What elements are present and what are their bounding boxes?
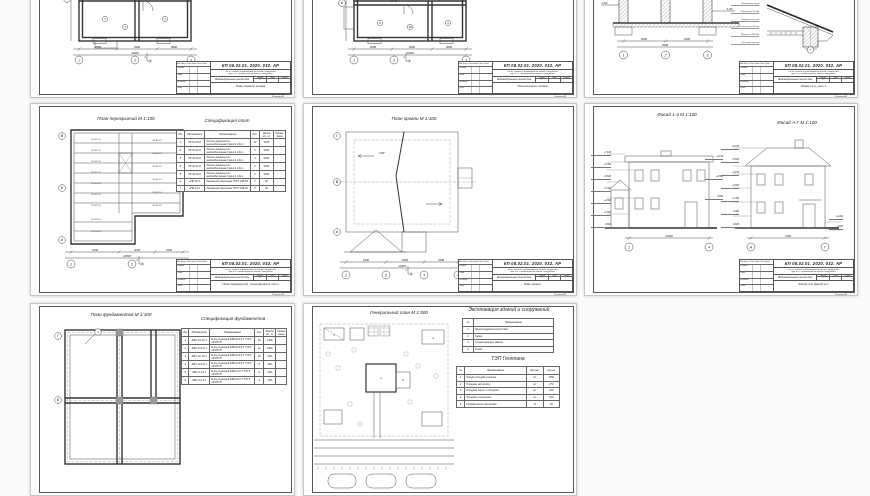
spec-cell: 470 [263, 369, 276, 377]
spec-cell: ФБС 24.4.6-Т [189, 337, 210, 345]
svg-text:2400: 2400 [362, 258, 370, 262]
svg-text:3220: 3220 [134, 248, 141, 252]
grid-axis-bubbles: 1 2 3 [620, 51, 712, 59]
section-cut-mark [139, 256, 144, 265]
spec-cell: ФБС 9.4.6-Т [189, 369, 210, 377]
slab-labels-right: ПК 42-15ПК 42-15ПК 42-15ПК 42-12ПК 42-15… [135, 134, 179, 212]
title-block: Изм. Кол.уч. Лист №док. Подп. Дата Разра… [458, 259, 573, 292]
drawing-title: Генеральный план М 1:500 [344, 310, 454, 315]
discipline-lines: ПМ.01 Участие в проектировании зданий и … [774, 70, 853, 77]
svg-text:1: 1 [353, 58, 355, 62]
sheet-floor1-plan[interactable]: 1 2 3 4 5 4500 2900 3600 11000 1 2 3 В Б… [30, 0, 295, 98]
spec-cell: Блок стеновой ФБС24.4.6-Т ГОСТ 13579-78 [210, 337, 255, 345]
table-row: 2Гараж [463, 333, 554, 340]
spec-cell: 3 [463, 340, 474, 347]
list-item: ПК 42-15 [135, 205, 179, 207]
sheet-slabs-plan[interactable]: План перекрытий М 1:100 Спецификация пли… [30, 103, 295, 296]
spec-cell: м² [527, 381, 543, 388]
spec-cell: 5 [177, 171, 185, 179]
spec-table: №Наименование1Проектируемый жилой дом2Га… [462, 318, 554, 353]
sheet-content-name: План перекрытий, спецификация плит [211, 281, 290, 291]
list-item: +6,870 [721, 146, 739, 150]
title-block: Изм. Кол.уч. Лист №док. Подп. Дата Разра… [458, 61, 573, 94]
spec-cell: ПК 51-12-8 [184, 147, 205, 155]
svg-text:4500: 4500 [641, 37, 648, 41]
spec-cell: 4 [182, 361, 189, 369]
sheets-count [841, 79, 853, 82]
svg-text:1: 1 [403, 55, 405, 59]
spec-cell: 5 [251, 185, 260, 192]
signature-row: Разраб. [740, 265, 773, 272]
foundations-spec-table: Поз.ОбозначениеНаименованиеКол.Масса ед.… [181, 328, 287, 385]
table-row: 3Площадь дорог и площадокм²420 [457, 388, 560, 395]
spec-cell: ПК 51-15-8 [184, 139, 205, 147]
table-row: 6ФБС 9.6.6-ТБлок стеновой ФБС9.6.6-Т ГОС… [182, 377, 287, 385]
sheet-facades[interactable]: Фасад 1-4 М 1:100 Фасад А-Г М 1:100 1090… [584, 103, 858, 296]
title-block-main: КП 08.02.01. 2020. 032. АР ПМ.01 Участие… [493, 62, 572, 93]
spec-cell: 1960 [263, 345, 276, 353]
node-callout-labels: МеталлочерепицаОбрешётка 32х100Стропильн… [731, 3, 759, 45]
spec-cell: 1800 [259, 147, 273, 155]
title-block-signatures: Изм. Кол.уч. Лист №док. Подп. Дата Разра… [459, 260, 493, 291]
spec-cell [273, 171, 285, 179]
svg-text:4500: 4500 [95, 45, 102, 49]
spec-cell: 270 [543, 381, 559, 388]
stage-value: У [817, 277, 829, 280]
spec-cell: 2 [251, 163, 260, 171]
discipline-lines: ПМ.01 Участие в проектировании зданий и … [211, 70, 290, 77]
spec-header-cell: Приме- чание [273, 131, 285, 139]
spec-cell: 4 [251, 155, 260, 163]
title-block-signatures: Изм. Кол.уч. Лист №док. Подп. Дата Разра… [177, 260, 211, 291]
sheets-count [278, 79, 290, 82]
spec-cell: 46 [255, 337, 263, 345]
spec-cell: 18 [543, 401, 559, 408]
sheet-section-node[interactable]: +5,640 +3,300 -1,940 +6,640 +4,140 +2,74… [584, 0, 858, 98]
spec-cell: 4 [463, 346, 474, 353]
spec-cell: 2 [177, 147, 185, 155]
document-code: КП 08.02.01. 2020. 032. АР [493, 260, 572, 268]
svg-text:А: А [749, 245, 753, 249]
list-item: +3,300 [591, 188, 611, 192]
discipline-line: МДК 01.01 Проектирование зданий и сооруж… [211, 73, 290, 75]
object-name: Индивидуальный жилой дом [774, 77, 816, 82]
facade-2-right-elevation-marks: +0,464-0,600 [829, 216, 843, 230]
spec-cell [273, 139, 285, 147]
spec-cell: Перемычка брусковая ГОСТ 948-84 [205, 179, 251, 186]
spec-header-cell: Наименование [465, 367, 527, 375]
svg-text:10900: 10900 [665, 234, 673, 238]
discipline-line: МДК 01.01 Проектирование зданий и сооруж… [493, 271, 572, 273]
slab-labels-mid: ПК 51-12ПК 15-12 [75, 214, 117, 238]
spec-header-cell: Приме- чание [276, 329, 287, 337]
svg-text:10800: 10800 [123, 254, 131, 258]
svg-text:2: 2 [664, 53, 667, 57]
list-item: +7,100 [591, 152, 611, 156]
spec-cell [273, 163, 285, 171]
list-item: ПК 51-15 [75, 194, 117, 196]
genplan-drawing: 1 2 3 4 [314, 320, 454, 492]
title-block: Изм. Кол.уч. Лист №док. Подп. Дата Разра… [739, 61, 854, 94]
list-item: Обрешётка 32х100 [731, 11, 759, 14]
spec-cell: Общая площадь участка [465, 375, 527, 382]
eave-node-drawing: Г [761, 1, 841, 53]
spec-cell [273, 155, 285, 163]
spec-header-cell: Масса ед., кг [259, 131, 273, 139]
list-item: ПК 15-12 [75, 231, 117, 233]
signature-row: Разраб. [177, 265, 210, 272]
table-row: 4ФБС 12.6.6-ТБлок стеновой ФБС12.6.6-Т Г… [182, 361, 287, 369]
list-item: +5,600 [591, 176, 611, 180]
table-row: 1Проектируемый жилой дом [463, 327, 554, 334]
spec-cell: % [527, 401, 543, 408]
spec-cell: 4 [177, 163, 185, 171]
stage-boxes: Стадия Лист Листов У [535, 77, 572, 82]
sheet-content-name: План первого этажа [211, 83, 290, 93]
sheet-content-name: План второго этажа [493, 83, 572, 93]
spec-cell [276, 369, 287, 377]
spec-cell: Блок стеновой ФБС9.4.6-Т ГОСТ 13579-78 [210, 369, 255, 377]
list-item: -0,600 [721, 224, 739, 228]
format-label: Формат А3 [554, 294, 566, 296]
svg-text:2: 2 [130, 262, 133, 266]
spec-cell [276, 353, 287, 361]
list-item: ПК 51-15 [75, 161, 117, 163]
spec-header-cell: № [457, 367, 465, 375]
signature-row: Разраб. [459, 67, 492, 74]
list-item: +6,390 [591, 164, 611, 168]
list-item: +5,600 [721, 159, 739, 163]
title-block-main: КП 08.02.01. 2020. 032. АР ПМ.01 Участие… [774, 260, 853, 291]
svg-text:А: А [60, 238, 64, 242]
slabs-spec-table: Поз.ОбозначениеНаименованиеКол.Масса ед.… [176, 130, 286, 192]
spec-cell [276, 337, 287, 345]
tep-table: №НаименованиеЕд.изм.Кол-во1Общая площадь… [456, 366, 560, 408]
spec-table: Поз.ОбозначениеНаименованиеКол.Масса ед.… [176, 130, 286, 192]
discipline-line: МДК 01.01 Проектирование зданий и сооруж… [774, 271, 853, 273]
spec-cell: 54 [259, 185, 273, 192]
svg-text:11000: 11000 [131, 51, 139, 55]
spec-cell: 1500 [259, 171, 273, 179]
sheet-number [266, 79, 278, 82]
table-row: 5Коэффициент застройки%18 [457, 401, 560, 408]
discipline-line: МДК 01.01 Проектирование зданий и сооруж… [774, 73, 853, 75]
signature-row: Н.контр. [459, 81, 492, 88]
signature-row: Утв. [740, 87, 773, 93]
svg-text:2: 2 [392, 58, 395, 62]
title-block-main: КП 08.02.01. 2020. 032. АР ПМ.01 Участие… [211, 62, 290, 93]
spec-cell: 6 [251, 147, 260, 155]
document-code: КП 08.02.01. 2020. 032. АР [211, 260, 290, 268]
spec-cell: Проектируемый жилой дом [473, 327, 553, 334]
stage-value: У [254, 277, 266, 280]
sheet-roof-plan[interactable]: План кровли М 1:100 i=30° 2400 5200 3400… [303, 103, 577, 296]
list-item: ПК 42-15 [135, 166, 179, 168]
signature-row: Разраб. [459, 265, 492, 272]
spec-cell: 420 [543, 388, 559, 395]
svg-text:4: 4 [708, 245, 710, 249]
spec-cell: ФБС 9.6.6-Т [189, 377, 210, 385]
object-name: Индивидуальный жилой дом [493, 77, 535, 82]
spec-cell: 960 [263, 361, 276, 369]
spec-cell: Блок стеновой ФБС24.6.6-Т ГОСТ 13579-78 [210, 345, 255, 353]
spec-cell: 7 [251, 179, 260, 186]
spec-cell: 2ПБ 22-3 [184, 179, 205, 186]
spec-cell: 18 [255, 353, 263, 361]
spec-cell: Плита перекрытия железобетонная Серия 1.… [205, 139, 251, 147]
signature-row: Н.контр. [740, 279, 773, 286]
svg-text:2: 2 [163, 17, 166, 21]
spec-header-cell: Наименование [210, 329, 255, 337]
spec-cell: 2 [182, 345, 189, 353]
spec-header-cell: Обозначение [189, 329, 210, 337]
table-row: 3Существующее здание [463, 340, 554, 347]
svg-text:1: 1 [78, 58, 80, 62]
sheet-floor2-plan[interactable]: 6 7 8 9 10 4500 2900 3600 11000 1 2 3 В … [303, 0, 577, 98]
signature-row: Пров. [740, 272, 773, 279]
svg-text:4: 4 [432, 336, 434, 340]
spec-cell: Коэффициент застройки [465, 401, 527, 408]
spec-cell: Площадь застройки [465, 381, 527, 388]
spec-table: №НаименованиеЕд.изм.Кол-во1Общая площадь… [456, 366, 560, 408]
spec-header-cell: Кол-во [543, 367, 559, 375]
spec-cell [276, 361, 287, 369]
explication-table: №Наименование1Проектируемый жилой дом2Га… [462, 318, 554, 353]
list-item: Подшивка карниза [731, 42, 759, 45]
svg-text:7300: 7300 [785, 234, 792, 238]
title-block-signatures: Изм. Кол.уч. Лист №док. Подп. Дата Разра… [177, 62, 211, 93]
spec-cell: 8 [255, 361, 263, 369]
list-item: ПК 42-15 [135, 153, 179, 155]
list-item: ПК 51-15 [75, 139, 117, 141]
spec-cell: ПК 42-12-8 [184, 163, 205, 171]
detail-leader [85, 334, 95, 344]
sheet-content-name: План кровли [493, 281, 572, 291]
svg-text:5200: 5200 [402, 258, 409, 262]
spec-header-cell: Кол. [255, 329, 263, 337]
list-item: ПК 42-15 [135, 140, 179, 142]
spec-cell: 92 [259, 179, 273, 186]
svg-text:2400: 2400 [165, 248, 173, 252]
spec-cell: Гараж [473, 333, 553, 340]
svg-text:1: 1 [628, 245, 630, 249]
spec-cell: 3 [182, 353, 189, 361]
svg-text:3400: 3400 [438, 258, 445, 262]
svg-text:2: 2 [133, 58, 136, 62]
svg-text:1: 1 [405, 268, 407, 272]
list-item: +4,870 [721, 172, 739, 176]
spec-cell: 1300 [263, 337, 276, 345]
section-cut-mark [408, 266, 413, 275]
roads [314, 440, 454, 464]
bushes [328, 474, 436, 488]
spec-cell: 12 [255, 345, 263, 353]
svg-text:2: 2 [401, 378, 404, 382]
spec-header-cell: Обозначение [184, 131, 205, 139]
spec-cell: 5 [457, 401, 465, 408]
list-item: ПК 51-15 [75, 183, 117, 185]
drawing-title: План перекрытий М 1:100 [71, 116, 181, 121]
signature-row: Н.контр. [459, 279, 492, 286]
stage-boxes: Стадия Лист Листов У [253, 77, 290, 82]
spec-cell: 7 [177, 185, 185, 192]
facade-2-elevation-marks: +6,870+5,600+4,870+2,800+1,3500,000-0,60… [721, 146, 739, 228]
table-row: 1Общая площадь участкам²1500 [457, 375, 560, 382]
table-row: 4ПК 42-12-8Плита перекрытия железобетонн… [177, 163, 286, 171]
stage-value: У [254, 79, 266, 82]
spec-cell: 2 [251, 171, 260, 179]
spec-cell: 2150 [259, 139, 273, 147]
signature-row: Утв. [177, 285, 210, 291]
table-row: 3ФБС 12.4.6-ТБлок стеновой ФБС12.4.6-Т Г… [182, 353, 287, 361]
table-row: 5ФБС 9.4.6-ТБлок стеновой ФБС9.4.6-Т ГОС… [182, 369, 287, 377]
title-block-main: КП 08.02.01. 2020. 032. АР ПМ.01 Участие… [211, 260, 290, 291]
title-block-signatures: Изм. Кол.уч. Лист №док. Подп. Дата Разра… [459, 62, 493, 93]
spec-cell: 2 [463, 333, 474, 340]
table-row: 2Площадь застройким²270 [457, 381, 560, 388]
spec-cell: 6 [177, 179, 185, 186]
spec-cell: 4 [255, 377, 263, 385]
spec-cell: м² [527, 375, 543, 382]
format-label: Формат А3 [272, 96, 284, 98]
svg-text:1: 1 [136, 258, 138, 262]
table-row: 4Склад [463, 346, 554, 353]
foundations-plan-drawing: 1 Г Б [55, 324, 190, 474]
list-item: Стропильная нога [731, 19, 759, 22]
spec-header-cell: Поз. [177, 131, 185, 139]
format-label: Формат А3 [554, 96, 566, 98]
signature-row: Разраб. [740, 67, 773, 74]
spec-cell: Плита перекрытия железобетонная Серия 1.… [205, 155, 251, 163]
facade-1-4-title: Фасад 1-4 М 1:100 [627, 112, 727, 117]
format-label: Формат А3 [272, 294, 284, 296]
title-block-main: КП 08.02.01. 2020. 032. АР ПМ.01 Участие… [493, 260, 572, 291]
spec-cell: Плита перекрытия железобетонная Серия 1.… [205, 163, 251, 171]
svg-text:2900: 2900 [408, 45, 416, 49]
signature-row: Н.контр. [177, 279, 210, 286]
svg-text:3: 3 [707, 53, 709, 57]
signature-row: Утв. [459, 87, 492, 93]
grid-axis-bubbles: 1 2 3 В Б [64, 0, 195, 64]
signature-row: Утв. [177, 87, 210, 93]
spec-cell: 1 [463, 327, 474, 334]
format-label: Формат А3 [835, 294, 847, 296]
spec-cell: Плита перекрытия железобетонная Серия 1.… [205, 171, 251, 179]
facade-1-elevation-marks: +7,100+6,390+5,600+3,300+2,800+1,500-0,6… [591, 152, 611, 228]
document-code: КП 08.02.01. 2020. 032. АР [774, 62, 853, 70]
spec-cell: м² [527, 388, 543, 395]
spec-cell: 5 [182, 369, 189, 377]
spec-cell: ПК 36-15-8 [184, 171, 205, 179]
spec-cell: Блок стеновой ФБС12.4.6-Т ГОСТ 13579-78 [210, 353, 255, 361]
list-item: +0,464 [829, 216, 843, 220]
title-block: Изм. Кол.уч. Лист №док. Подп. Дата Разра… [176, 61, 291, 94]
signature-row: Пров. [177, 74, 210, 81]
sheet-number [829, 277, 841, 280]
svg-text:10: 10 [408, 25, 412, 29]
svg-text:-1,940: -1,940 [601, 2, 608, 5]
table-row: 62ПБ 22-3Перемычка брусковая ГОСТ 948-84… [177, 179, 286, 186]
list-item: +1,500 [591, 212, 611, 216]
list-item: ПК 42-12 [135, 179, 179, 181]
list-item: ПК 51-15 [75, 172, 117, 174]
table-row: 2ФБС 24.6.6-ТБлок стеновой ФБС24.6.6-Т Г… [182, 345, 287, 353]
explic-title: Экспликация зданий и сооружений [450, 307, 568, 313]
discipline-lines: ПМ.01 Участие в проектировании зданий и … [493, 268, 572, 275]
spec-cell [276, 377, 287, 385]
stage-boxes: Стадия Лист Листов У [253, 275, 290, 280]
spec-table: Поз.ОбозначениеНаименованиеКол.Масса ед.… [181, 328, 287, 385]
signature-row: Пров. [177, 272, 210, 279]
sheets-count [278, 277, 290, 280]
list-item: ПК 51-12 [75, 219, 117, 221]
spec-cell: ФБС 24.6.6-Т [189, 345, 210, 353]
spec-title: Спецификация плит [173, 118, 281, 123]
stage-value: У [536, 277, 548, 280]
signature-row: Н.контр. [740, 81, 773, 88]
list-item: +2,800 [591, 200, 611, 204]
signature-row: Пров. [459, 74, 492, 81]
spec-cell: 3 [177, 155, 185, 163]
sheet-content-name: Разрез 1-1, узел 1 [774, 83, 853, 93]
spec-header-cell: Поз. [182, 329, 189, 337]
svg-text:i=30°: i=30° [379, 151, 386, 155]
stage-boxes: Стадия Лист Листов У [535, 275, 572, 280]
floor-plan-2-drawing: 6 7 8 9 10 4500 2900 3600 11000 1 2 3 В … [340, 0, 490, 66]
stage-value: У [817, 79, 829, 82]
stage-boxes: Стадия Лист Листов У [816, 77, 853, 82]
sheet-number [548, 79, 560, 82]
spec-cell: 700 [263, 377, 276, 385]
grid-axis-bubbles: Г Б [55, 333, 62, 404]
spec-cell: 1 [457, 375, 465, 382]
spec-cell: Площадь дорог и площадок [465, 388, 527, 395]
signature-row: Утв. [459, 285, 492, 291]
signature-row: Пров. [459, 272, 492, 279]
spec-cell: 12 [251, 139, 260, 147]
svg-text:3600: 3600 [446, 45, 453, 49]
spec-cell: 3 [457, 388, 465, 395]
spec-cell: 2 [457, 381, 465, 388]
sheet-content-name: Фасад 1-4, фасад А-Г [774, 281, 853, 291]
signature-row: Разраб. [177, 67, 210, 74]
document-code: КП 08.02.01. 2020. 032. АР [774, 260, 853, 268]
table-row: 1ПК 51-15-8Плита перекрытия железобетонн… [177, 139, 286, 147]
list-item: -0,600 [591, 224, 611, 228]
object-name: Индивидуальный жилой дом [211, 275, 253, 280]
spec-cell: 1 [182, 337, 189, 345]
signature-row: Пров. [740, 74, 773, 81]
spec-header-cell: № [463, 319, 474, 327]
table-row: 3ПК 42-15-8Плита перекрытия железобетонн… [177, 155, 286, 163]
sheet-number [266, 277, 278, 280]
spec-cell [273, 147, 285, 155]
svg-text:2900: 2900 [133, 45, 141, 49]
format-label: Формат А3 [835, 96, 847, 98]
title-block-signatures: Изм. Кол.уч. Лист №док. Подп. Дата Разра… [740, 62, 774, 93]
section-cut-mark [147, 53, 152, 62]
table-row: 2ПК 51-12-8Плита перекрытия железобетонн… [177, 147, 286, 155]
title-block: Изм. Кол.уч. Лист №док. Подп. Дата Разра… [739, 259, 854, 292]
drawings-collage-page: { "project": { "code": "КП 08.02.01. 202… [0, 0, 870, 400]
spec-cell: ПК 42-15-8 [184, 155, 205, 163]
discipline-lines: ПМ.01 Участие в проектировании зданий и … [211, 268, 290, 275]
svg-text:5180: 5180 [92, 248, 99, 252]
spec-title: Спецификация фундаментов [179, 316, 287, 321]
svg-text:11000: 11000 [406, 51, 414, 55]
spec-cell [273, 185, 285, 192]
object-name: Индивидуальный жилой дом [211, 77, 253, 82]
